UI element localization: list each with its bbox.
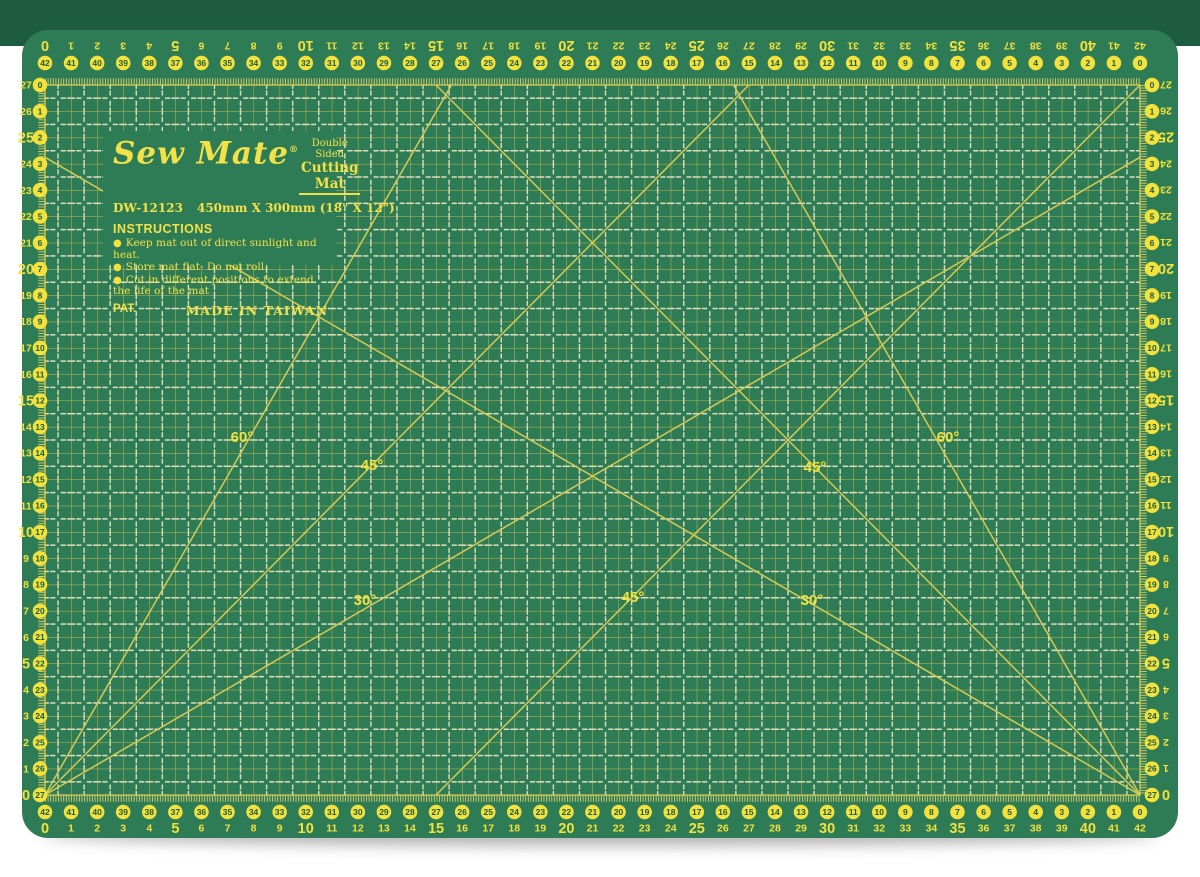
ruler-number: 20 xyxy=(558,37,574,53)
ruler-number: 41 xyxy=(1108,39,1120,51)
ruler-number: 21 xyxy=(20,237,32,249)
ruler-number: 11 xyxy=(326,39,337,51)
ruler-number: 22 xyxy=(613,823,625,835)
circled-number: 2 xyxy=(1085,807,1090,817)
circled-number: 19 xyxy=(640,58,650,68)
ruler-number: 34 xyxy=(926,823,938,835)
bullet-icon: ● xyxy=(113,238,122,249)
circled-number: 16 xyxy=(1147,501,1157,511)
ruler-number: 16 xyxy=(1160,368,1172,380)
ruler-number: 22 xyxy=(613,39,625,51)
ruler-number: 4 xyxy=(146,39,152,51)
ruler-number: 27 xyxy=(1160,78,1172,90)
circled-number: 29 xyxy=(379,807,389,817)
ruler-number: 20 xyxy=(1158,260,1174,276)
ruler-number: 19 xyxy=(534,39,546,51)
circled-number: 8 xyxy=(1150,290,1155,300)
ruler-number: 15 xyxy=(1158,392,1174,408)
mat-size: 450mm X 300mm (18" X 12") xyxy=(197,201,395,215)
ruler-number: 31 xyxy=(847,39,859,51)
ruler-number: 29 xyxy=(795,39,807,51)
circled-number: 32 xyxy=(301,58,311,68)
ruler-number: 25 xyxy=(1158,129,1174,145)
circled-number: 42 xyxy=(40,58,50,68)
circled-number: 10 xyxy=(1147,343,1157,353)
circled-number: 14 xyxy=(770,58,780,68)
ruler-number: 8 xyxy=(1163,578,1169,590)
circled-number: 41 xyxy=(66,807,76,817)
ruler-number: 20 xyxy=(18,262,34,278)
model-number: DW-12123 xyxy=(113,201,183,215)
circled-number: 19 xyxy=(640,807,650,817)
ruler-number: 9 xyxy=(277,823,283,835)
ruler-number: 9 xyxy=(23,553,29,565)
brand-row: Sew Mate® Double Sided Cutting Mat xyxy=(113,135,328,195)
ruler-number: 24 xyxy=(665,823,677,835)
ruler-number: 15 xyxy=(18,393,34,409)
ruler-number: 24 xyxy=(20,158,32,170)
ruler-number: 10 xyxy=(298,821,314,837)
angle-label: 60° xyxy=(231,429,254,446)
circled-number: 26 xyxy=(457,807,467,817)
ruler-number: 14 xyxy=(404,39,416,51)
ruler-number: 26 xyxy=(20,106,32,118)
ruler-number: 33 xyxy=(899,39,911,51)
circled-number: 20 xyxy=(614,58,624,68)
circled-number: 40 xyxy=(92,58,102,68)
instruction-item: ●Cut in different positions to extend th… xyxy=(113,275,328,298)
circled-number: 2 xyxy=(38,133,43,143)
ruler-number: 19 xyxy=(535,823,547,835)
circled-number: 0 xyxy=(1150,80,1155,90)
ruler-number: 28 xyxy=(769,39,781,51)
ruler-number: 32 xyxy=(873,39,885,51)
ruler-number: 25 xyxy=(689,821,705,837)
ruler-number: 13 xyxy=(20,448,32,460)
ruler-number: 13 xyxy=(1160,447,1172,459)
ruler-number: 6 xyxy=(198,39,204,51)
ruler-number: 38 xyxy=(1030,823,1042,835)
ruler-number: 18 xyxy=(508,823,520,835)
ruler-number: 4 xyxy=(23,684,29,696)
circled-number: 2 xyxy=(1085,58,1090,68)
ruler-number: 24 xyxy=(1160,157,1172,169)
circled-number: 17 xyxy=(692,807,702,817)
ruler-number: 11 xyxy=(326,823,337,835)
ruler-number: 25 xyxy=(689,37,705,53)
ruler-number: 23 xyxy=(639,823,651,835)
circled-number: 8 xyxy=(38,290,43,300)
ruler-number: 18 xyxy=(1160,315,1172,327)
ruler-number: 36 xyxy=(978,39,990,51)
ruler-number: 30 xyxy=(819,37,835,53)
circled-number: 41 xyxy=(66,58,76,68)
circled-number: 11 xyxy=(849,58,858,68)
label-panel: Sew Mate® Double Sided Cutting Mat DW-12… xyxy=(103,131,336,265)
ruler-number: 3 xyxy=(120,39,126,51)
circled-number: 22 xyxy=(562,807,572,817)
circled-number: 9 xyxy=(1150,317,1155,327)
ruler-number: 33 xyxy=(899,823,911,835)
ruler-number: 0 xyxy=(1162,786,1170,802)
ruler-number: 14 xyxy=(20,421,32,433)
circled-number: 30 xyxy=(353,58,363,68)
bullet-icon: ● xyxy=(113,262,122,273)
angle-label: 30° xyxy=(354,592,377,609)
ruler-number: 41 xyxy=(1108,823,1120,835)
ruler-number: 3 xyxy=(1163,710,1169,722)
patent-label: PAT. xyxy=(113,303,136,318)
circled-number: 34 xyxy=(249,807,259,817)
circled-number: 18 xyxy=(1147,553,1157,563)
circled-number: 33 xyxy=(275,58,285,68)
ruler-number: 3 xyxy=(23,711,29,723)
circled-number: 13 xyxy=(1147,422,1157,432)
angle-label: 45° xyxy=(361,457,384,474)
instruction-item: ●Store mat flat- Do not roll. xyxy=(113,262,328,274)
circled-number: 3 xyxy=(1059,807,1064,817)
circled-number: 7 xyxy=(38,264,43,274)
ruler-number: 5 xyxy=(22,656,30,672)
ruler-number: 18 xyxy=(508,39,520,51)
circled-number: 39 xyxy=(118,807,128,817)
ruler-number: 20 xyxy=(558,821,574,837)
ruler-number: 7 xyxy=(225,823,231,835)
circled-number: 19 xyxy=(1147,580,1157,590)
ruler-number: 35 xyxy=(949,821,965,837)
ruler-number: 37 xyxy=(1004,823,1016,835)
circled-number: 4 xyxy=(1150,185,1155,195)
ruler-number: 4 xyxy=(1163,683,1169,695)
circled-number: 27 xyxy=(1147,790,1157,800)
ruler-number: 8 xyxy=(23,579,29,591)
ruler-number: 34 xyxy=(925,39,937,51)
circled-number: 23 xyxy=(536,807,546,817)
circled-number: 28 xyxy=(405,807,415,817)
ruler-number: 23 xyxy=(639,39,651,51)
ruler-number: 31 xyxy=(847,823,859,835)
ruler-number: 21 xyxy=(586,39,598,51)
ruler-number: 17 xyxy=(482,823,494,835)
circled-number: 5 xyxy=(1150,211,1155,221)
ruler-number: 23 xyxy=(1160,184,1172,196)
circled-number: 10 xyxy=(875,58,885,68)
ruler-number: 30 xyxy=(819,821,835,837)
circled-number: 40 xyxy=(92,807,102,817)
ruler-number: 0 xyxy=(41,37,49,53)
circled-number: 36 xyxy=(197,807,207,817)
circled-number: 22 xyxy=(562,58,572,68)
circled-number: 34 xyxy=(249,58,259,68)
ruler-number: 5 xyxy=(1162,655,1170,671)
circled-number: 3 xyxy=(1150,159,1155,169)
circled-number: 33 xyxy=(275,807,285,817)
circled-number: 6 xyxy=(981,58,986,68)
circled-number: 22 xyxy=(1147,659,1157,669)
circled-number: 39 xyxy=(118,58,128,68)
ruler-number: 37 xyxy=(1004,39,1016,51)
circled-number: 28 xyxy=(405,58,415,68)
instruction-item: ●Keep mat out of direct sunlight and hea… xyxy=(113,238,328,261)
circled-number: 25 xyxy=(35,737,45,747)
circled-number: 19 xyxy=(35,580,45,590)
ruler-number: 15 xyxy=(428,37,444,53)
circled-number: 11 xyxy=(36,369,45,379)
circled-number: 21 xyxy=(1147,632,1157,642)
ruler-number: 15 xyxy=(428,821,444,837)
ruler-number: 24 xyxy=(665,39,677,51)
ruler-number: 12 xyxy=(352,39,364,51)
circled-number: 16 xyxy=(718,807,728,817)
circled-number: 7 xyxy=(955,58,960,68)
circled-number: 20 xyxy=(35,606,45,616)
ruler-number: 14 xyxy=(404,823,416,835)
circled-number: 14 xyxy=(1147,448,1157,458)
ruler-number: 19 xyxy=(1160,289,1172,301)
brand-logo: Sew Mate® xyxy=(113,135,299,168)
circled-number: 27 xyxy=(35,790,45,800)
circled-number: 1 xyxy=(38,106,43,116)
circled-number: 12 xyxy=(822,58,832,68)
circled-number: 15 xyxy=(744,58,754,68)
ruler-number: 10 xyxy=(298,37,314,53)
circled-number: 37 xyxy=(171,807,181,817)
ruler-number: 5 xyxy=(171,821,179,837)
ruler-number: 1 xyxy=(68,39,74,51)
ruler-number: 16 xyxy=(20,369,32,381)
circled-number: 22 xyxy=(35,659,45,669)
circled-number: 1 xyxy=(1112,58,1117,68)
circled-number: 23 xyxy=(536,58,546,68)
circled-number: 11 xyxy=(1148,369,1157,379)
ruler-number: 13 xyxy=(378,39,390,51)
angle-label: 45° xyxy=(622,589,645,606)
ruler-number: 26 xyxy=(1160,105,1172,117)
ruler-number: 29 xyxy=(795,823,807,835)
circled-number: 5 xyxy=(1007,58,1012,68)
circled-number: 16 xyxy=(718,58,728,68)
circled-number: 17 xyxy=(35,527,45,537)
ruler-number: 42 xyxy=(1134,39,1146,51)
circled-number: 24 xyxy=(510,807,520,817)
circled-number: 38 xyxy=(145,807,155,817)
ruler-number: 0 xyxy=(41,821,49,837)
circled-number: 0 xyxy=(1138,58,1143,68)
ruler-number: 10 xyxy=(1158,523,1174,539)
circled-number: 11 xyxy=(849,807,858,817)
circled-number: 9 xyxy=(38,317,43,327)
ruler-number: 27 xyxy=(743,823,755,835)
ruler-number: 39 xyxy=(1056,823,1068,835)
circled-number: 10 xyxy=(35,343,45,353)
ruler-number: 27 xyxy=(743,39,755,51)
ruler-number: 26 xyxy=(717,39,729,51)
ruler-number: 2 xyxy=(94,823,100,835)
circled-number: 32 xyxy=(301,807,311,817)
double-sided-label: Double Sided xyxy=(299,138,360,160)
ruler-number: 7 xyxy=(1163,604,1169,616)
ruler-number: 40 xyxy=(1080,37,1096,53)
cutting-mat-label: Cutting Mat xyxy=(299,160,360,195)
circled-number: 13 xyxy=(796,807,806,817)
circled-number: 27 xyxy=(431,58,441,68)
ruler-number: 38 xyxy=(1030,39,1042,51)
ruler-number: 28 xyxy=(769,823,781,835)
ruler-number: 11 xyxy=(1160,499,1171,511)
circled-number: 18 xyxy=(666,807,676,817)
ruler-number: 21 xyxy=(587,823,599,835)
circled-number: 1 xyxy=(1150,106,1155,116)
ruler-number: 5 xyxy=(171,37,179,53)
ruler-number: 42 xyxy=(1134,823,1146,835)
circled-number: 14 xyxy=(35,448,45,458)
bullet-icon: ● xyxy=(113,275,122,286)
circled-number: 25 xyxy=(483,58,493,68)
circled-number: 26 xyxy=(457,58,467,68)
brand-name: Sew Mate xyxy=(113,135,289,171)
circled-number: 31 xyxy=(327,807,337,817)
circled-number: 6 xyxy=(1150,238,1155,248)
panel-footer: PAT. MADE IN TAIWAN xyxy=(113,303,328,318)
circled-number: 37 xyxy=(171,58,181,68)
circled-number: 35 xyxy=(223,807,233,817)
ruler-number: 21 xyxy=(1160,236,1172,248)
ruler-number: 6 xyxy=(1163,631,1169,643)
ruler-number: 10 xyxy=(18,525,34,541)
ruler-number: 26 xyxy=(717,823,729,835)
circled-number: 12 xyxy=(1147,396,1157,406)
circled-number: 21 xyxy=(588,807,598,817)
ruler-number: 25 xyxy=(18,131,34,147)
ruler-number: 9 xyxy=(277,39,283,51)
ruler-number: 2 xyxy=(1163,736,1169,748)
circled-number: 4 xyxy=(1033,58,1038,68)
ruler-number: 1 xyxy=(68,823,74,835)
ruler-number: 16 xyxy=(456,823,468,835)
circled-number: 18 xyxy=(35,553,45,563)
circled-number: 24 xyxy=(510,58,520,68)
circled-number: 7 xyxy=(955,807,960,817)
circled-number: 18 xyxy=(666,58,676,68)
instructions-title: INSTRUCTIONS xyxy=(113,222,328,236)
ruler-number: 32 xyxy=(873,823,885,835)
ruler-number: 22 xyxy=(1160,210,1172,222)
cutting-mat-photo: 0123456789101112131415161718192021222324… xyxy=(0,0,1200,877)
circled-number: 21 xyxy=(588,58,598,68)
ruler-number: 14 xyxy=(1160,420,1172,432)
ruler-number: 1 xyxy=(1163,762,1169,774)
ruler-number: 35 xyxy=(949,37,965,53)
circled-number: 24 xyxy=(1147,711,1157,721)
ruler-number: 27 xyxy=(20,80,32,92)
angle-label: 60° xyxy=(937,429,960,446)
ruler-number: 16 xyxy=(456,39,468,51)
circled-number: 8 xyxy=(929,58,934,68)
ruler-number: 23 xyxy=(20,185,32,197)
circled-number: 35 xyxy=(223,58,233,68)
ruler-number: 8 xyxy=(250,39,256,51)
ruler-number: 17 xyxy=(20,343,32,355)
circled-number: 0 xyxy=(38,80,43,90)
circled-number: 14 xyxy=(770,807,780,817)
ruler-number: 17 xyxy=(482,39,494,51)
ruler-number: 12 xyxy=(1160,473,1172,485)
circled-number: 25 xyxy=(483,807,493,817)
ruler-number: 6 xyxy=(23,632,29,644)
circled-number: 5 xyxy=(38,211,43,221)
circled-number: 0 xyxy=(1138,807,1143,817)
circled-number: 7 xyxy=(1150,264,1155,274)
circled-number: 29 xyxy=(379,58,389,68)
ruler-number: 40 xyxy=(1080,821,1096,837)
circled-number: 17 xyxy=(692,58,702,68)
ruler-number: 19 xyxy=(20,290,32,302)
circled-number: 26 xyxy=(35,764,45,774)
ruler-number: 1 xyxy=(23,763,29,775)
circled-number: 23 xyxy=(35,685,45,695)
registered-mark: ® xyxy=(289,145,299,155)
model-row: DW-12123 450mm X 300mm (18" X 12") xyxy=(113,201,328,215)
made-in-label: MADE IN TAIWAN xyxy=(186,303,328,318)
ruler-number: 39 xyxy=(1056,39,1068,51)
circled-number: 4 xyxy=(38,185,43,195)
circled-number: 9 xyxy=(903,807,908,817)
product-type: Double Sided Cutting Mat xyxy=(299,135,362,195)
circled-number: 9 xyxy=(903,58,908,68)
circled-number: 25 xyxy=(1147,737,1157,747)
angle-label: 45° xyxy=(804,459,827,476)
circled-number: 13 xyxy=(796,58,806,68)
circled-number: 5 xyxy=(1007,807,1012,817)
ruler-number: 11 xyxy=(20,500,31,512)
ruler-number: 9 xyxy=(1163,552,1169,564)
ruler-number: 22 xyxy=(20,211,32,223)
circled-number: 3 xyxy=(38,159,43,169)
circled-number: 13 xyxy=(35,422,45,432)
circled-number: 2 xyxy=(1150,133,1155,143)
circled-number: 17 xyxy=(1147,527,1157,537)
circled-number: 20 xyxy=(614,807,624,817)
circled-number: 15 xyxy=(744,807,754,817)
circled-number: 6 xyxy=(981,807,986,817)
ruler-number: 8 xyxy=(251,823,257,835)
circled-number: 20 xyxy=(1147,606,1157,616)
ruler-number: 7 xyxy=(224,39,230,51)
circled-number: 30 xyxy=(353,807,363,817)
ruler-number: 12 xyxy=(20,474,32,486)
instructions-list: ●Keep mat out of direct sunlight and hea… xyxy=(113,238,328,298)
ruler-number: 6 xyxy=(199,823,205,835)
ruler-number: 36 xyxy=(978,823,990,835)
angle-label: 30° xyxy=(801,592,824,609)
circled-number: 21 xyxy=(35,632,45,642)
ruler-number: 17 xyxy=(1160,341,1172,353)
circled-number: 15 xyxy=(35,474,45,484)
circled-number: 31 xyxy=(327,58,337,68)
ruler-number: 3 xyxy=(120,823,126,835)
circled-number: 24 xyxy=(35,711,45,721)
ruler-number: 0 xyxy=(22,788,30,804)
circled-number: 23 xyxy=(1147,685,1157,695)
circled-number: 42 xyxy=(40,807,50,817)
circled-number: 1 xyxy=(1112,807,1117,817)
circled-number: 12 xyxy=(822,807,832,817)
circled-number: 12 xyxy=(35,396,45,406)
circled-number: 6 xyxy=(38,238,43,248)
ruler-number: 7 xyxy=(23,605,29,617)
ruler-number: 13 xyxy=(378,823,390,835)
circled-number: 4 xyxy=(1033,807,1038,817)
